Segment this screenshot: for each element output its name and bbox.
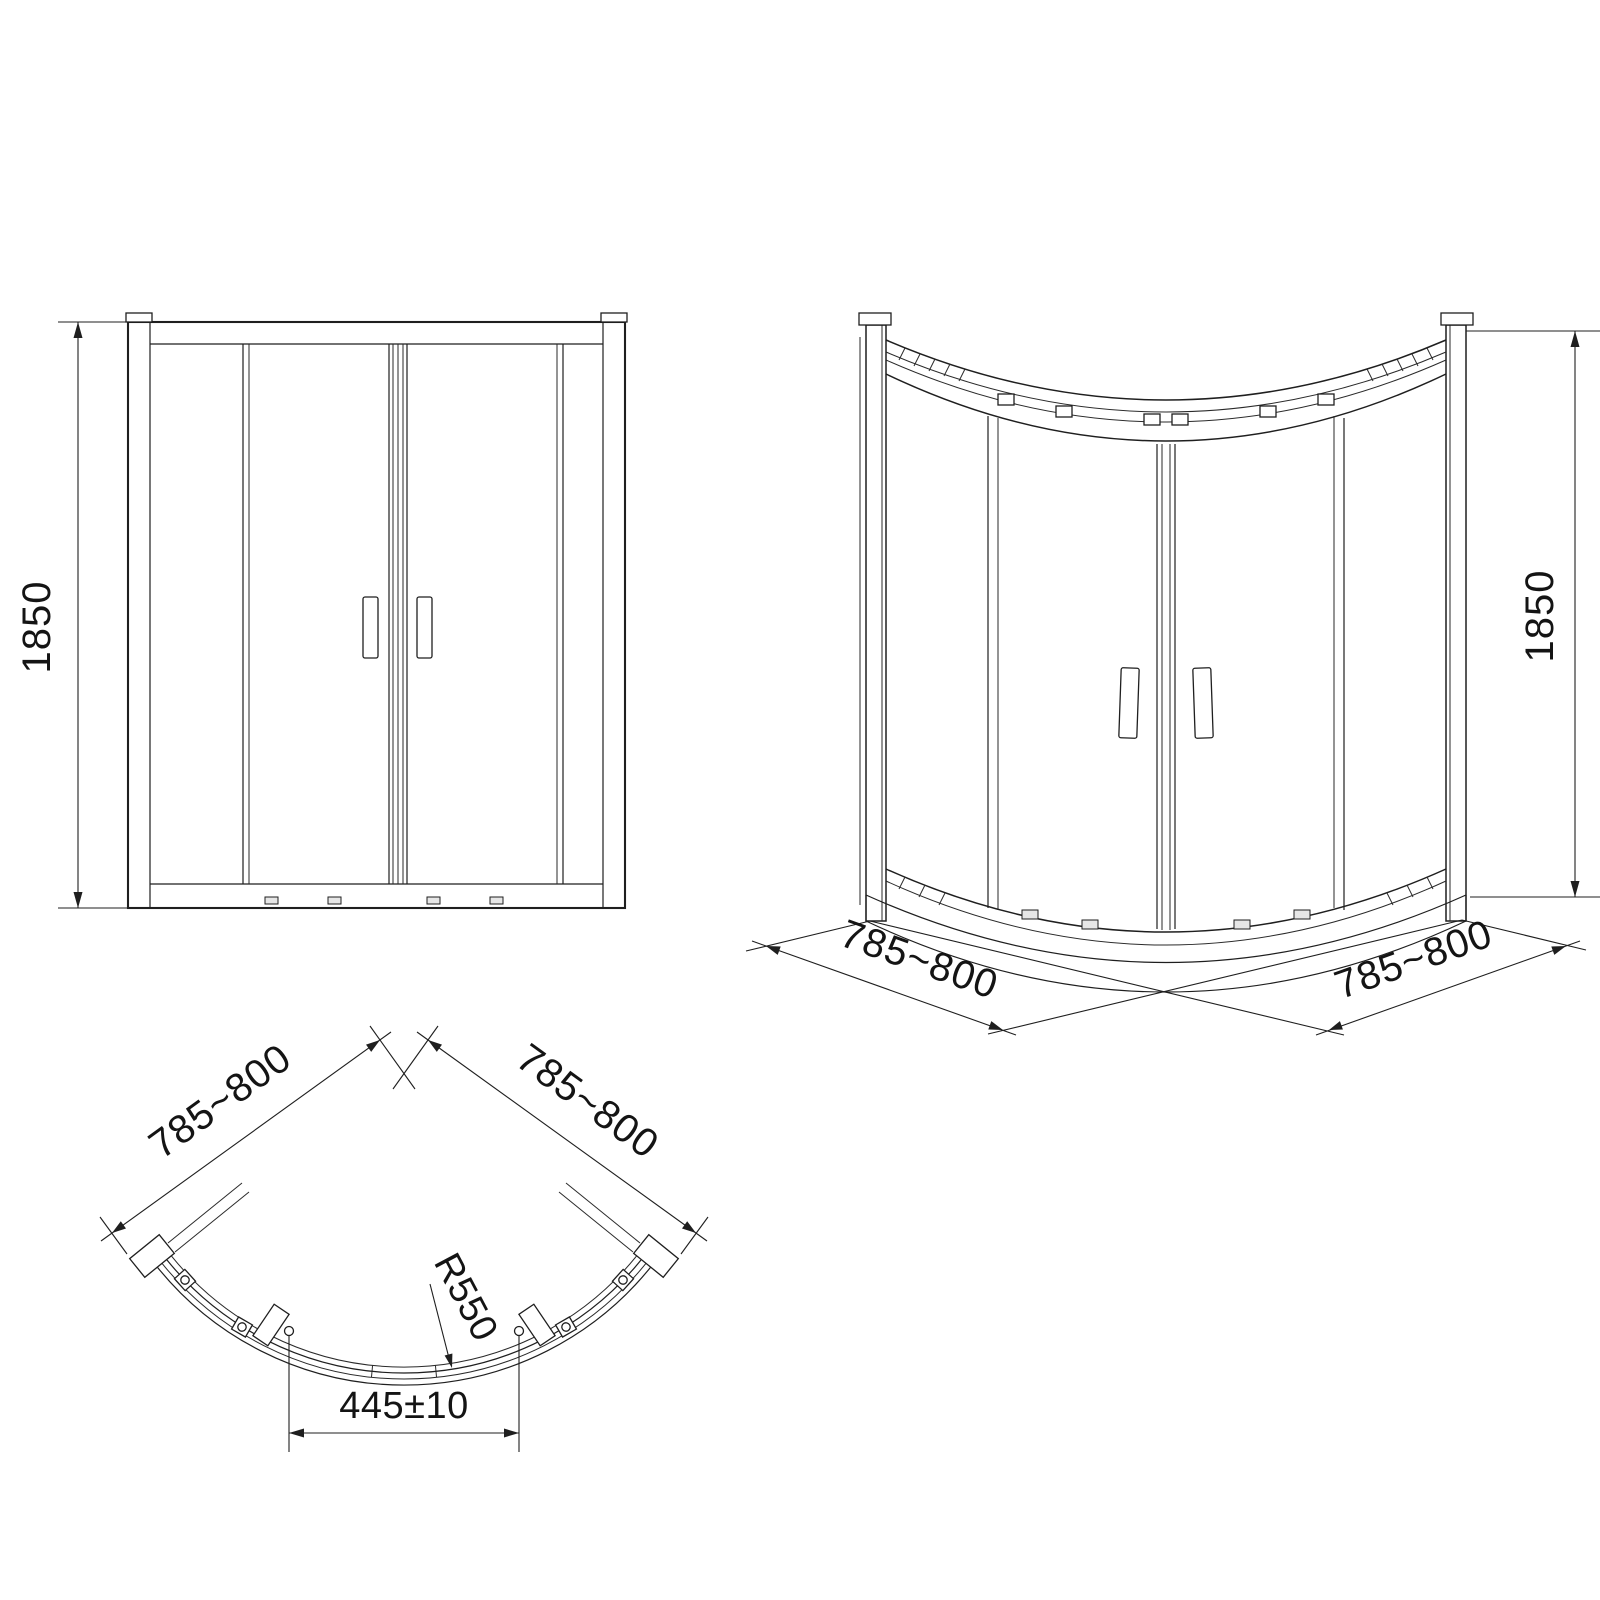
shower-enclosure-drawing: 1850 bbox=[0, 0, 1600, 1600]
perspective-left-base-label: 785~800 bbox=[835, 912, 1004, 1008]
plan-rollers-and-handles bbox=[174, 1269, 633, 1345]
frame-corner-cap-right bbox=[601, 313, 627, 322]
perspective-posts bbox=[859, 313, 1473, 921]
perspective-height-label: 1850 bbox=[1518, 570, 1562, 663]
door-handle-right bbox=[1193, 668, 1213, 739]
plan-side-dimensions: 785~800 785~800 bbox=[100, 1026, 708, 1254]
plan-entry-label: 445±10 bbox=[339, 1385, 469, 1427]
door-handle-plan-left bbox=[253, 1304, 289, 1346]
roller-carrier bbox=[556, 1317, 577, 1337]
plan-left-side-label: 785~800 bbox=[141, 1036, 299, 1168]
perspective-view: 1850 785~800 785~800 bbox=[746, 313, 1600, 1035]
bottom-rail-hatching bbox=[899, 877, 1433, 905]
plan-wall-profiles bbox=[130, 1183, 679, 1277]
door-edge-knob-left bbox=[285, 1327, 294, 1336]
wall-profile-left bbox=[130, 1235, 175, 1278]
door-handle-left bbox=[363, 597, 378, 658]
perspective-door-handles bbox=[1119, 668, 1213, 739]
plan-radius-label: R550 bbox=[425, 1247, 506, 1349]
technical-drawing-sheet: 1850 bbox=[0, 0, 1600, 1600]
door-handle-left bbox=[1119, 668, 1139, 739]
top-roller-carriers bbox=[998, 394, 1334, 425]
plan-curved-tracks bbox=[158, 1256, 651, 1385]
roller-carrier bbox=[232, 1317, 253, 1337]
top-rail-hatching bbox=[899, 348, 1433, 381]
front-bottom-guides bbox=[265, 897, 503, 904]
perspective-height-dimension: 1850 bbox=[1466, 331, 1600, 897]
frame-corner-cap-left bbox=[126, 313, 152, 322]
perspective-base-dimensions: 785~800 785~800 bbox=[746, 912, 1586, 1035]
door-edge-knob-right bbox=[515, 1327, 524, 1336]
bottom-roller-guides bbox=[1022, 910, 1310, 929]
front-height-label: 1850 bbox=[15, 581, 59, 674]
plan-right-side-label: 785~800 bbox=[508, 1036, 666, 1168]
post-cap-right bbox=[1441, 313, 1473, 325]
front-height-dimension: 1850 bbox=[15, 322, 128, 908]
plan-view: 785~800 785~800 R550 445±10 bbox=[100, 1026, 708, 1452]
post-cap-left bbox=[859, 313, 891, 325]
perspective-right-base-label: 785~800 bbox=[1329, 912, 1498, 1008]
perspective-door-edges bbox=[988, 416, 1344, 930]
door-handle-right bbox=[417, 597, 432, 658]
plan-entry-dimension: 445±10 bbox=[289, 1336, 519, 1452]
plan-radius-dimension: R550 bbox=[425, 1247, 506, 1368]
front-elevation-view: 1850 bbox=[15, 313, 627, 908]
perspective-top-rail bbox=[886, 340, 1446, 441]
door-handle-plan-right bbox=[519, 1304, 555, 1346]
front-panel-dividers bbox=[243, 344, 563, 884]
wall-profile-right bbox=[634, 1235, 679, 1278]
